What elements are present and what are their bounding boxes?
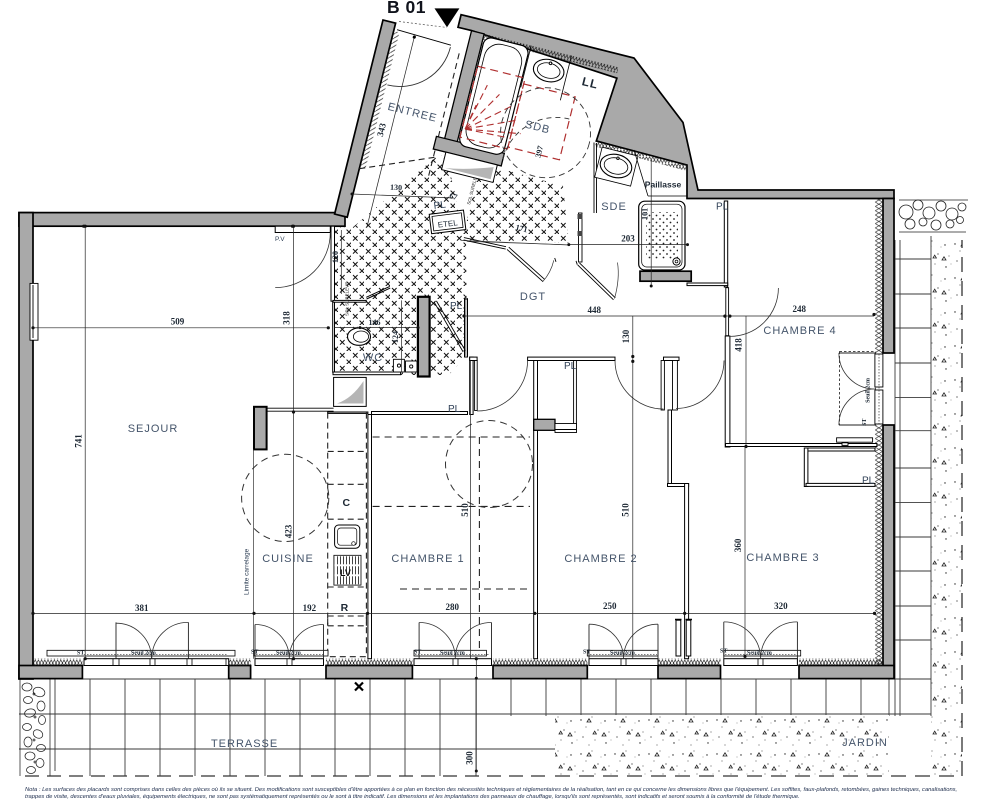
- svg-text:PL: PL: [448, 404, 461, 415]
- svg-text:Seuil 2cm: Seuil 2cm: [131, 651, 156, 657]
- svg-text:CHAMBRE 4: CHAMBRE 4: [763, 325, 836, 337]
- svg-text:360: 360: [733, 538, 743, 552]
- svg-text:ST: ST: [414, 650, 421, 656]
- svg-text:423: 423: [284, 524, 294, 538]
- svg-text:trappes de visite, descentes d: trappes de visite, descentes d'eaux pluv…: [25, 794, 800, 800]
- svg-text:LV: LV: [340, 568, 351, 578]
- svg-text:B 01: B 01: [387, 0, 426, 17]
- svg-text:WC: WC: [363, 352, 383, 364]
- svg-text:PL: PL: [564, 361, 577, 372]
- svg-text:418: 418: [734, 338, 744, 352]
- svg-text:Nota : Les surfaces des placar: Nota : Les surfaces des placards sont co…: [25, 787, 957, 793]
- svg-text:Seuil 2cm: Seuil 2cm: [276, 651, 301, 657]
- svg-text:510: 510: [460, 503, 470, 517]
- svg-text:ST: ST: [251, 650, 258, 656]
- svg-text:PL: PL: [450, 301, 463, 312]
- svg-text:P.V: P.V: [275, 236, 285, 243]
- svg-text:280: 280: [446, 602, 460, 612]
- svg-text:124: 124: [391, 331, 400, 343]
- svg-text:ST: ST: [720, 649, 727, 655]
- svg-text:741: 741: [74, 434, 84, 448]
- svg-text:ST: ST: [862, 419, 868, 426]
- svg-text:CHAMBRE 3: CHAMBRE 3: [746, 552, 819, 564]
- svg-text:448: 448: [587, 305, 601, 315]
- svg-text:PL: PL: [862, 476, 875, 487]
- svg-text:C: C: [343, 497, 351, 509]
- svg-text:318: 318: [282, 311, 292, 325]
- svg-text:Seuil 2cm: Seuil 2cm: [610, 651, 635, 657]
- svg-text:146: 146: [369, 318, 381, 327]
- svg-text:Seuil 2cm: Seuil 2cm: [866, 378, 872, 403]
- svg-text:R: R: [341, 602, 349, 614]
- svg-text:300: 300: [465, 751, 475, 765]
- svg-text:ST: ST: [77, 651, 84, 657]
- svg-text:509: 509: [171, 317, 185, 327]
- svg-text:Seuil 2cm: Seuil 2cm: [747, 651, 772, 657]
- svg-text:PL: PL: [433, 200, 447, 212]
- svg-text:DGT: DGT: [520, 291, 546, 303]
- svg-text:320: 320: [774, 601, 788, 611]
- svg-text:203: 203: [621, 234, 635, 244]
- svg-text:130: 130: [621, 329, 631, 343]
- svg-text:101: 101: [641, 208, 650, 220]
- svg-text:120: 120: [331, 251, 340, 263]
- svg-text:CUISINE: CUISINE: [262, 553, 314, 565]
- svg-text:PL: PL: [716, 202, 729, 213]
- svg-text:510: 510: [621, 503, 631, 517]
- svg-text:ST: ST: [583, 650, 590, 656]
- svg-text:Seuil 2cm: Seuil 2cm: [440, 651, 465, 657]
- svg-text:TERRASSE: TERRASSE: [211, 738, 278, 750]
- svg-text:381: 381: [135, 603, 149, 613]
- svg-text:SOL SURELEVE: SOL SURELEVE: [345, 282, 350, 316]
- svg-text:SDE: SDE: [601, 201, 627, 213]
- svg-text:Paillasse: Paillasse: [645, 180, 682, 190]
- svg-text:JARDIN: JARDIN: [842, 737, 888, 749]
- svg-text:248: 248: [792, 304, 806, 314]
- svg-text:CHAMBRE 1: CHAMBRE 1: [391, 553, 464, 565]
- svg-text:CHAMBRE 2: CHAMBRE 2: [564, 553, 637, 565]
- svg-text:SEJOUR: SEJOUR: [128, 423, 179, 435]
- svg-text:130: 130: [390, 183, 402, 192]
- svg-text:Limite carrelage: Limite carrelage: [244, 548, 251, 595]
- svg-text:250: 250: [603, 601, 617, 611]
- svg-text:192: 192: [303, 603, 317, 613]
